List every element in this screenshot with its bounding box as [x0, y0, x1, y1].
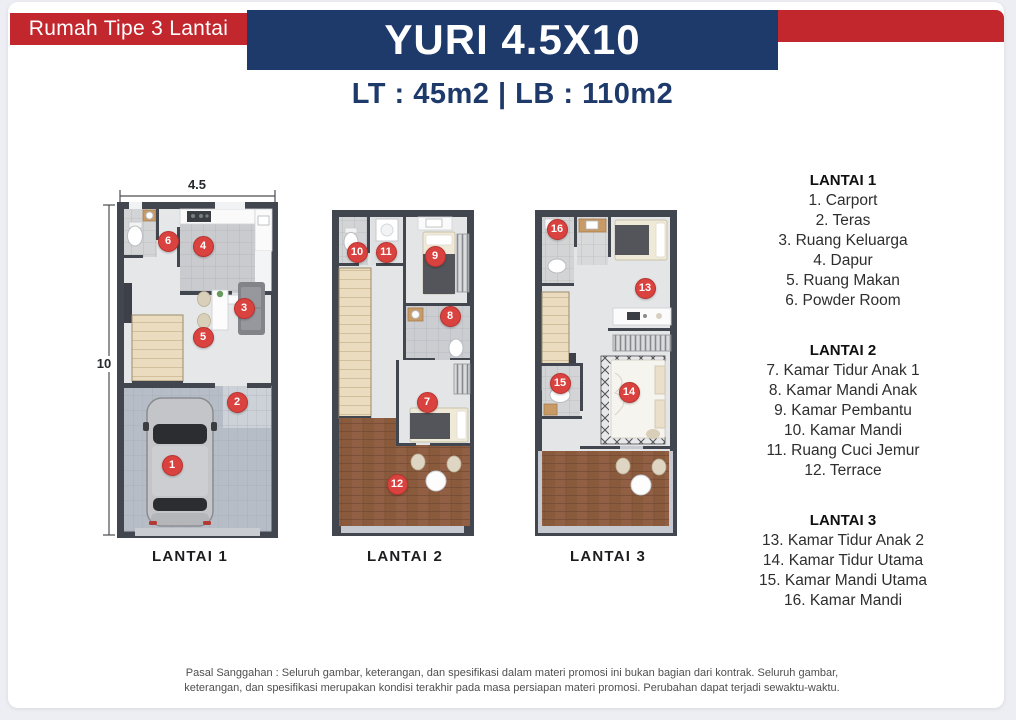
legend-item: 12. Terrace [737, 461, 949, 481]
flyer: Rumah Tipe 3 Lantai YURI 4.5X10 LT : 45m… [0, 0, 1016, 720]
legend-item: 5. Ruang Makan [737, 271, 949, 291]
room-marker-14: 14 [619, 382, 640, 403]
desk-icon [613, 308, 671, 325]
legend-header: LANTAI 3 [737, 511, 949, 531]
room-marker-15: 15 [550, 373, 571, 394]
plan-caption-lantai-3: LANTAI 3 [533, 548, 683, 565]
legend-header: LANTAI 1 [737, 171, 949, 191]
legend-item: 9. Kamar Pembantu [737, 401, 949, 421]
chair-icon [616, 458, 630, 474]
toilet-icon [449, 339, 463, 357]
legend-item: 3. Ruang Keluarga [737, 231, 949, 251]
room-marker-4: 4 [193, 236, 214, 257]
room-marker-16: 16 [547, 219, 568, 240]
round-table-icon [631, 475, 651, 495]
legend-group-2: LANTAI 27. Kamar Tidur Anak 18. Kamar Ma… [737, 341, 949, 481]
bed-icon [410, 408, 468, 442]
room-marker-6: 6 [158, 231, 179, 252]
room-marker-13: 13 [635, 278, 656, 299]
legend-item: 13. Kamar Tidur Anak 2 [737, 531, 949, 551]
area-subtitle: LT : 45m2 | LB : 110m2 [247, 78, 778, 111]
chair-icon [198, 292, 211, 307]
plan-caption-lantai-1: LANTAI 1 [95, 548, 285, 565]
round-table-icon [426, 471, 446, 491]
ottoman-icon [646, 429, 660, 439]
chair-icon [652, 459, 666, 475]
room-marker-11: 11 [376, 242, 397, 263]
wardrobe-icon [454, 364, 470, 394]
toilet-icon [548, 259, 566, 273]
legend-item: 7. Kamar Tidur Anak 1 [737, 361, 949, 381]
legend-item: 14. Kamar Tidur Utama [737, 551, 949, 571]
room-marker-8: 8 [440, 306, 461, 327]
legend-group-3: LANTAI 313. Kamar Tidur Anak 214. Kamar … [737, 511, 949, 611]
legend-group-1: LANTAI 11. Carport2. Teras3. Ruang Kelua… [737, 171, 949, 311]
plant-icon [217, 291, 223, 297]
room-marker-5: 5 [193, 327, 214, 348]
header-accent-bar [778, 10, 1004, 42]
stairs-icon [339, 268, 371, 420]
bed-icon [611, 360, 665, 438]
legend: LANTAI 11. Carport2. Teras3. Ruang Kelua… [737, 171, 949, 641]
chair-icon [411, 454, 425, 470]
page-title: YURI 4.5X10 [384, 16, 640, 64]
dimension-width-label: 4.5 [188, 177, 206, 192]
legend-item: 10. Kamar Mandi [737, 421, 949, 441]
bathroom-8 [403, 305, 471, 363]
wardrobe-icon [457, 234, 469, 292]
room-marker-2: 2 [227, 392, 248, 413]
toilet-icon [128, 226, 143, 246]
cabinet-icon [124, 283, 132, 323]
room-marker-7: 7 [417, 392, 438, 413]
type-badge-label: Rumah Tipe 3 Lantai [29, 17, 229, 41]
vanity-area [577, 217, 611, 265]
chair-icon [447, 456, 461, 472]
legend-header: LANTAI 2 [737, 341, 949, 361]
legend-item: 4. Dapur [737, 251, 949, 271]
bed-icon [615, 220, 667, 260]
disclaimer-text: Pasal Sanggahan : Seluruh gambar, ketera… [158, 666, 866, 696]
stairs-icon [132, 315, 183, 386]
kitchen-sink-icon [258, 216, 269, 225]
room-marker-9: 9 [425, 246, 446, 267]
legend-item: 11. Ruang Cuci Jemur [737, 441, 949, 461]
legend-item: 15. Kamar Mandi Utama [737, 571, 949, 591]
dimension-depth-label: 10 [97, 356, 111, 371]
sink-icon [426, 219, 442, 227]
legend-item: 1. Carport [737, 191, 949, 211]
legend-item: 8. Kamar Mandi Anak [737, 381, 949, 401]
room-marker-3: 3 [234, 298, 255, 319]
wardrobe-icon [613, 335, 671, 351]
legend-item: 6. Powder Room [737, 291, 949, 311]
room-marker-10: 10 [347, 242, 368, 263]
legend-item: 16. Kamar Mandi [737, 591, 949, 611]
type-badge: Rumah Tipe 3 Lantai [10, 13, 247, 45]
floorplan-lantai-1: 4.5 10 [95, 170, 285, 542]
carport [124, 383, 272, 536]
room-marker-1: 1 [162, 455, 183, 476]
sink-icon [544, 404, 557, 415]
legend-item: 2. Teras [737, 211, 949, 231]
room-marker-12: 12 [387, 474, 408, 495]
powder-room [124, 202, 159, 258]
balcony [538, 451, 673, 533]
title-bar: YURI 4.5X10 [247, 10, 778, 70]
plan-caption-lantai-2: LANTAI 2 [330, 548, 480, 565]
